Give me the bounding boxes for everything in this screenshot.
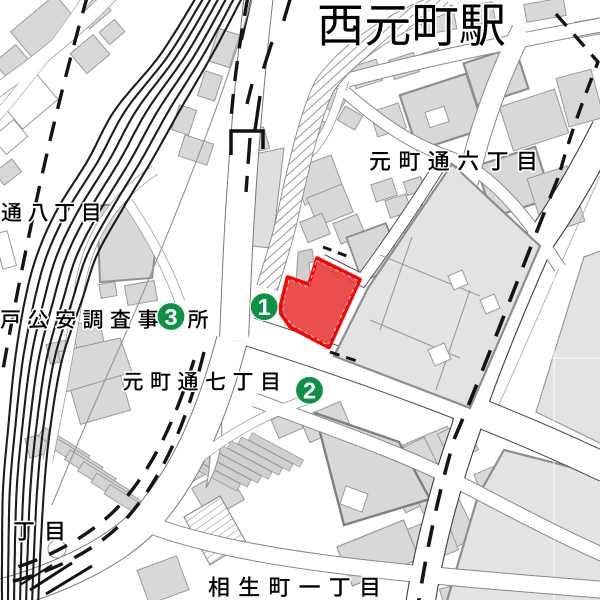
svg-text:3: 3 [164, 304, 177, 330]
svg-text:1: 1 [258, 294, 271, 320]
svg-text:2: 2 [303, 378, 316, 404]
